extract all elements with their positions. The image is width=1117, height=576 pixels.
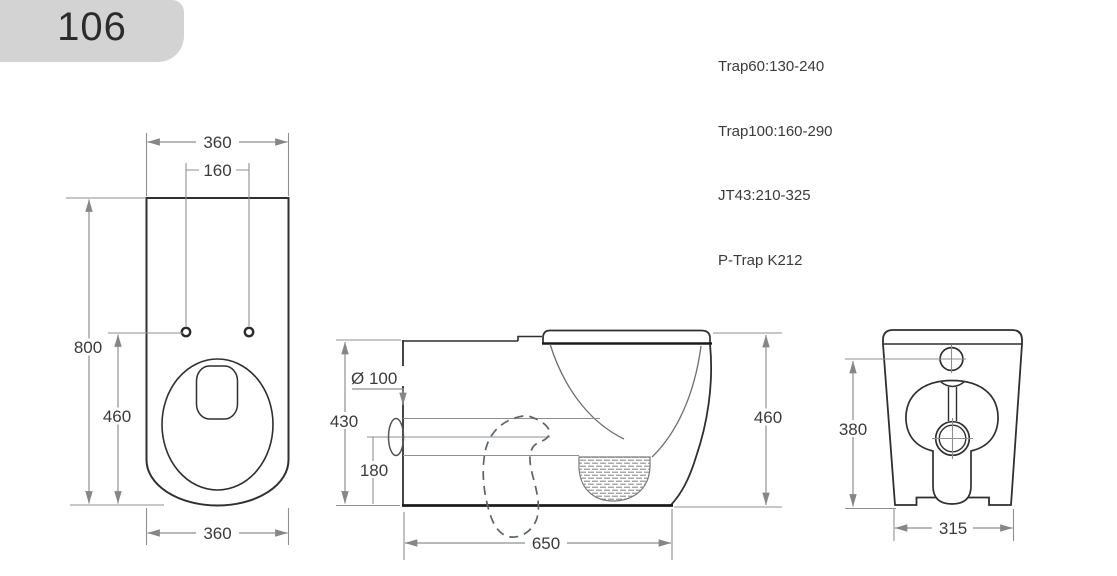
dim-outlet-diameter-label: Ø 100 [351, 369, 397, 388]
seat-profile [543, 331, 710, 344]
dim-inlet-height-label: 380 [839, 420, 867, 439]
dim-overall-depth-label: 800 [74, 338, 102, 357]
fixing-hole-left [182, 328, 190, 336]
dim-hole-spacing-label: 160 [203, 161, 231, 180]
trapway-dashed-outline [483, 416, 549, 537]
technical-drawing: 360 160 800 [0, 0, 1117, 576]
dim-base-width-label: 315 [939, 519, 967, 538]
dim-bowl-depth-label: 460 [103, 407, 131, 426]
dim-top-width-label: 360 [203, 133, 231, 152]
dim-seat-height-label: 460 [754, 408, 782, 427]
water-area [579, 457, 650, 501]
dim-outlet-height-label: 180 [360, 461, 388, 480]
fixing-hole-right [245, 328, 253, 336]
bowl-interior-back-curve [550, 344, 624, 439]
side-view: Ø 100 430 180 650 [327, 331, 785, 561]
dim-back-height-label: 430 [330, 412, 358, 431]
dim-overall-length-label: 650 [532, 534, 560, 553]
body-top-edge [403, 337, 542, 342]
pan-footprint-outline [147, 198, 289, 506]
bowl-interior-front-curve [652, 346, 701, 457]
dim-outlet-diameter: Ø 100 [348, 366, 412, 405]
dim-bottom-width-label: 360 [203, 524, 231, 543]
spec-sheet-page: 106 Trap60:130-240 Trap100:160-290 JT43:… [0, 0, 1117, 576]
top-view: 360 160 800 [66, 133, 289, 545]
rear-view: 380 315 [836, 330, 1022, 541]
